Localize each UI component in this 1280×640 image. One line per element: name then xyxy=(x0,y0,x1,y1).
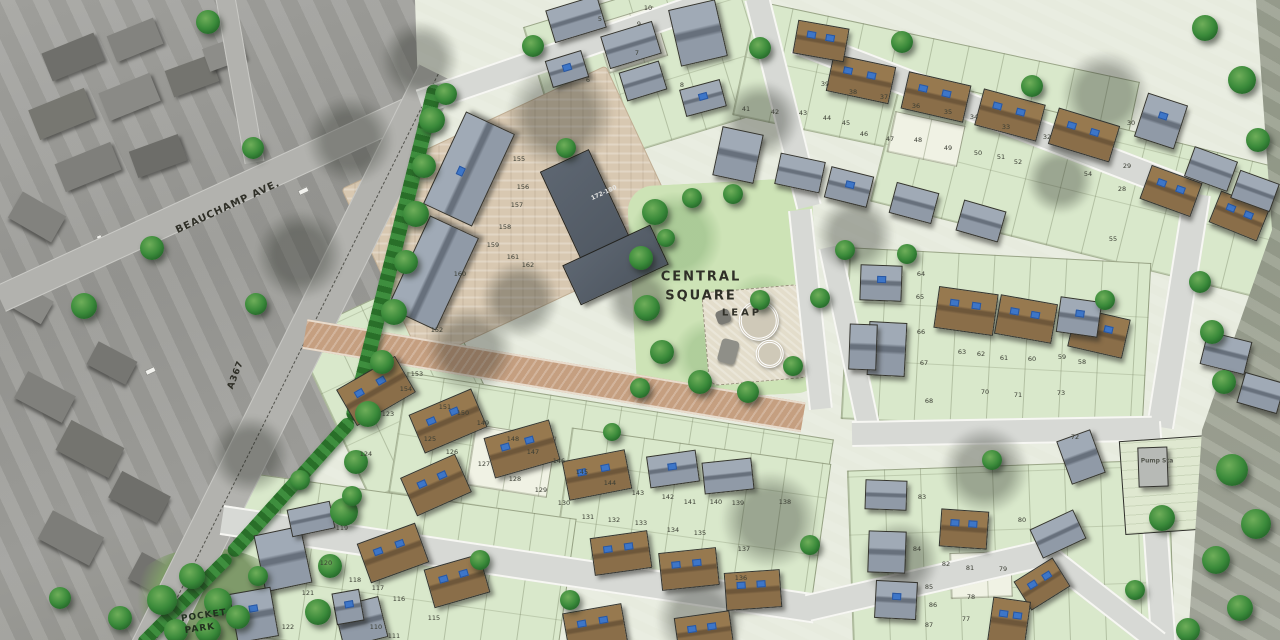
plot-number: 38 xyxy=(849,89,857,96)
plot-number: 32 xyxy=(1043,134,1051,141)
plot-number: 142 xyxy=(662,494,674,501)
site-plan-map: BEAUCHAMP AVE.A367CENTRALSQUARELEAPPOCKE… xyxy=(0,0,1280,640)
plot-number: 87 xyxy=(925,622,933,629)
plot-number: 146 xyxy=(553,458,565,465)
plot-number: 51 xyxy=(997,154,1005,161)
plot-number: 60 xyxy=(1028,356,1036,363)
plot-number: 124 xyxy=(360,451,372,458)
plot-number: 48 xyxy=(914,137,922,144)
plot-number: 46 xyxy=(860,131,868,138)
plot-number: 141 xyxy=(684,499,696,506)
plot-number: 153 xyxy=(411,371,423,378)
plot-number: 130 xyxy=(558,500,570,507)
plot-number: 128 xyxy=(509,476,521,483)
plot-number: 63 xyxy=(958,349,966,356)
plot-number: 36 xyxy=(912,103,920,110)
plot-number: 135 xyxy=(694,530,706,537)
plot-number: 28 xyxy=(1118,186,1126,193)
plot-number: 66 xyxy=(917,329,925,336)
plot-number: 30 xyxy=(1127,120,1135,127)
plot-number: 161 xyxy=(507,254,519,261)
plot-number: 59 xyxy=(1058,354,1066,361)
plot-number: 145 xyxy=(576,469,588,476)
plot-number: 42 xyxy=(771,109,779,116)
plot-number: 70 xyxy=(981,389,989,396)
plot-number: 10 xyxy=(644,5,652,12)
plot-number: 159 xyxy=(487,242,499,249)
plot-number: 35 xyxy=(944,109,952,116)
plot-number: 147 xyxy=(527,449,539,456)
plot-number: 49 xyxy=(944,145,952,152)
plot-number: 44 xyxy=(823,115,831,122)
plot-number: 7 xyxy=(635,50,639,57)
plot-number: 131 xyxy=(582,514,594,521)
plot-number: 64 xyxy=(917,271,925,278)
plot-number: 133 xyxy=(635,520,647,527)
area-name-label: LEAP xyxy=(722,308,762,319)
plot-number: 72 xyxy=(1071,434,1079,441)
plot-number: 111 xyxy=(388,633,400,640)
plot-number: 71 xyxy=(1014,392,1022,399)
plot-number: 37 xyxy=(880,94,888,101)
plot-number: 151 xyxy=(439,404,451,411)
plot-number: 47 xyxy=(886,136,894,143)
plot-number: 68 xyxy=(925,398,933,405)
plot-number: 55 xyxy=(1109,236,1117,243)
plot-number: 9 xyxy=(637,21,641,28)
plot-number: 117 xyxy=(372,585,384,592)
plot-number: 81 xyxy=(966,565,974,572)
plot-number: 132 xyxy=(608,517,620,524)
area-name-label: SQUARE xyxy=(665,289,737,304)
road-name-label: A367 xyxy=(226,359,246,390)
area-name-label: 172-180 xyxy=(590,184,618,202)
plot-number: 158 xyxy=(499,224,511,231)
plot-number: 62 xyxy=(977,351,985,358)
plot-number: 121 xyxy=(302,590,314,597)
plot-number: 120 xyxy=(320,560,332,567)
plot-number: 123 xyxy=(382,411,394,418)
labels-layer: BEAUCHAMP AVE.A367CENTRALSQUARELEAPPOCKE… xyxy=(0,0,1280,640)
plot-number: 80 xyxy=(1018,517,1026,524)
plot-number: 58 xyxy=(1078,359,1086,366)
plot-number: 127 xyxy=(478,461,490,468)
plot-number: 156 xyxy=(517,184,529,191)
plot-number: 150 xyxy=(457,410,469,417)
plot-number: 115 xyxy=(428,615,440,622)
plot-number: 137 xyxy=(738,546,750,553)
plot-number: 155 xyxy=(513,156,525,163)
plot-number: 84 xyxy=(913,546,921,553)
plot-number: 134 xyxy=(667,527,679,534)
plot-number: 77 xyxy=(962,616,970,623)
plot-number: 162 xyxy=(522,262,534,269)
plot-number: 79 xyxy=(999,566,1007,573)
plot-number: 154 xyxy=(400,386,412,393)
plot-number: 139 xyxy=(732,500,744,507)
plot-number: 144 xyxy=(604,480,616,487)
plot-number: 39 xyxy=(821,81,829,88)
plot-number: 126 xyxy=(446,449,458,456)
area-name-label: CENTRAL xyxy=(661,270,742,285)
plot-number: 34 xyxy=(970,114,978,121)
plot-number: 82 xyxy=(942,561,950,568)
plot-number: 73 xyxy=(1057,390,1065,397)
plot-number: 118 xyxy=(349,577,361,584)
plot-number: 160 xyxy=(454,271,466,278)
area-name-label: Pump Sta xyxy=(1141,458,1174,465)
plot-number: 29 xyxy=(1123,163,1131,170)
plot-number: 45 xyxy=(842,120,850,127)
plot-number: 54 xyxy=(1084,171,1092,178)
plot-number: 110 xyxy=(370,624,382,631)
plot-number: 152 xyxy=(431,327,443,334)
plot-number: 67 xyxy=(920,360,928,367)
plot-number: 33 xyxy=(1002,124,1010,131)
plot-number: 125 xyxy=(424,436,436,443)
plot-number: 119 xyxy=(336,525,348,532)
plot-number: 6 xyxy=(586,77,590,84)
area-name-label: PARK xyxy=(184,622,216,636)
plot-number: 50 xyxy=(974,150,982,157)
plot-number: 78 xyxy=(967,594,975,601)
plot-number: 41 xyxy=(742,106,750,113)
plot-number: 5 xyxy=(598,16,602,23)
plot-number: 136 xyxy=(735,575,747,582)
plot-number: 116 xyxy=(393,596,405,603)
plot-number: 86 xyxy=(929,602,937,609)
plot-number: 122 xyxy=(282,624,294,631)
plot-number: 8 xyxy=(680,82,684,89)
plot-number: 85 xyxy=(925,584,933,591)
plot-number: 129 xyxy=(535,487,547,494)
plot-number: 52 xyxy=(1014,159,1022,166)
plot-number: 83 xyxy=(918,494,926,501)
plot-number: 61 xyxy=(1000,355,1008,362)
plot-number: 143 xyxy=(632,490,644,497)
plot-number: 65 xyxy=(916,294,924,301)
road-name-label: BEAUCHAMP AVE. xyxy=(174,178,282,236)
plot-number: 157 xyxy=(511,202,523,209)
plot-number: 43 xyxy=(799,110,807,117)
plot-number: 138 xyxy=(779,499,791,506)
area-name-label: POCKET xyxy=(180,608,227,624)
plot-number: 148 xyxy=(507,436,519,443)
plot-number: 149 xyxy=(477,420,489,427)
plot-number: 140 xyxy=(710,499,722,506)
